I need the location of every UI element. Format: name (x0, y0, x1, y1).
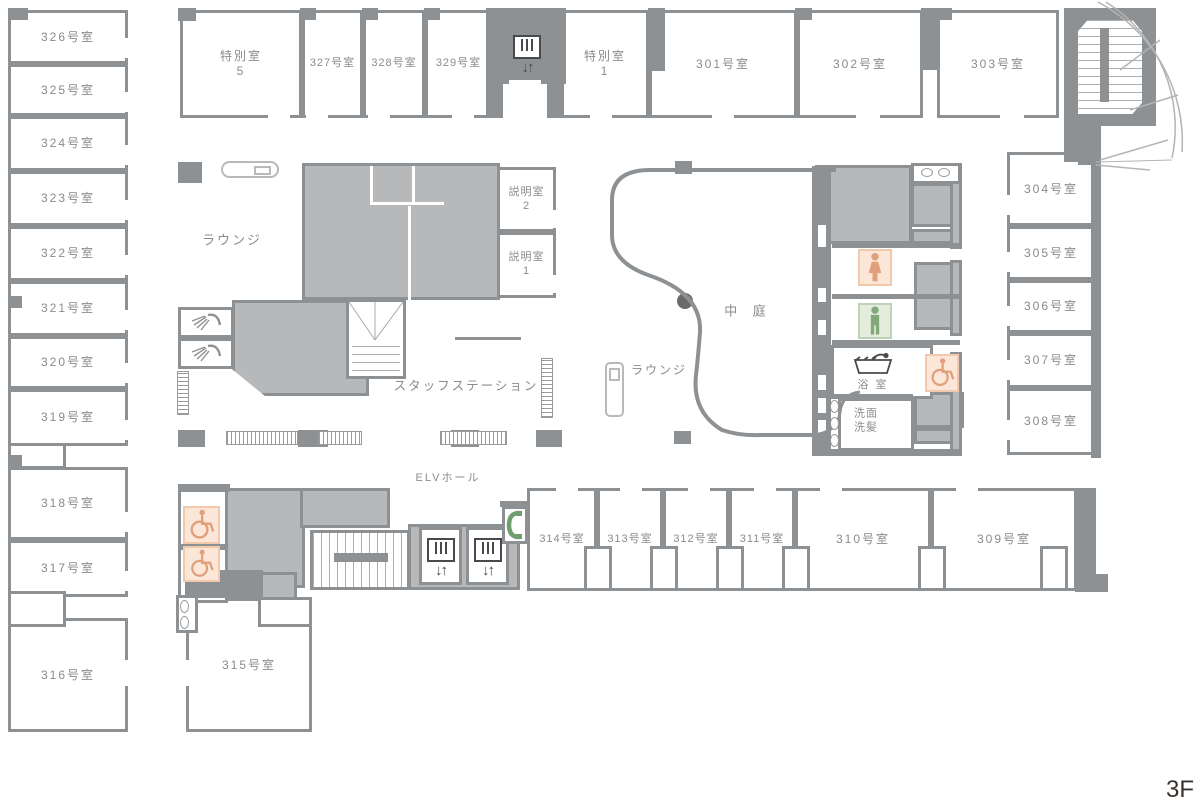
elevator-icon: ↓↑ (470, 535, 505, 581)
wall-segment (486, 82, 503, 118)
wall-segment (362, 8, 378, 20)
label-washroom: 洗面洗髪 (854, 407, 878, 436)
door-gap (124, 571, 130, 591)
door-gap (124, 92, 130, 112)
sink-icon (921, 168, 933, 177)
room-325-label: 325号室 (41, 83, 95, 98)
room-302-label: 302号室 (833, 57, 887, 72)
service-block-main (302, 163, 500, 300)
room-305: 305号室 (1007, 226, 1095, 280)
elevator-car-glyph (513, 35, 541, 59)
wheelchair-icon (183, 546, 220, 582)
door-gap (1005, 420, 1011, 440)
door-gap (124, 145, 130, 165)
vending-inner (609, 368, 620, 381)
wall-segment (832, 294, 960, 299)
room-325: 325号室 (8, 64, 128, 116)
female-toilet-icon (858, 249, 892, 286)
service-block (300, 488, 390, 528)
room-301: 301号室 (649, 10, 797, 118)
label-staff-station: スタッフステーション (394, 378, 539, 394)
room-317-label: 317号室 (41, 561, 95, 576)
door-gap (818, 225, 826, 247)
bath-icon (852, 352, 894, 376)
stairs-treads (352, 346, 400, 376)
door-gap (509, 80, 541, 85)
bench (177, 371, 189, 415)
room-307-label: 307号室 (1024, 353, 1078, 368)
room-318-label: 318号室 (41, 496, 95, 511)
room-306: 306号室 (1007, 280, 1095, 333)
sink-icon (830, 400, 839, 413)
floor-plan: 3F 326号室325号室324号室323号室322号室321号室320号室31… (0, 0, 1200, 806)
room-319: 319号室 (8, 389, 128, 446)
wall-segment (8, 296, 22, 308)
inner-partition (412, 166, 415, 204)
wall-segment (547, 82, 564, 118)
room-310-label: 310号室 (836, 532, 890, 547)
shower-icon (188, 342, 226, 366)
room-314-label: 314号室 (539, 533, 584, 547)
wall-segment (1091, 126, 1101, 458)
wall-segment (300, 8, 316, 20)
elevator-arrows: ↓↑ (482, 563, 493, 578)
door-gap (818, 320, 826, 335)
wheelchair-icon (183, 506, 220, 544)
room-303: 303号室 (937, 10, 1059, 118)
door-gap (124, 310, 130, 330)
sink-icon (180, 616, 189, 629)
door-gap (1005, 360, 1011, 380)
elevator-car-glyph (474, 538, 502, 562)
wall-segment (675, 161, 692, 174)
label-courtyard: 中 庭 (724, 304, 772, 321)
label-bath: 浴 室 (857, 378, 888, 392)
label-elv-hall: ELVホール (416, 471, 481, 485)
room-324-label: 324号室 (41, 136, 95, 151)
sink-counter (911, 163, 961, 184)
door-gap (124, 200, 130, 220)
door-gap (818, 420, 826, 433)
door-gap (1005, 306, 1011, 326)
wall-segment (1075, 574, 1108, 592)
phone-icon (505, 510, 524, 540)
shower-icon (188, 311, 226, 335)
wall-segment (832, 243, 960, 248)
door-gap (1005, 195, 1011, 215)
room-327: 327号室 (302, 10, 363, 118)
room-setsumei-1: 説明室1 (497, 232, 556, 298)
door-gap (754, 486, 776, 492)
room-320: 320号室 (8, 336, 128, 389)
lounge-counter-icon (221, 161, 279, 178)
room-307: 307号室 (1007, 333, 1095, 388)
wall-segment (178, 162, 202, 183)
elevator-arrows: ↓↑ (435, 563, 446, 578)
room-302: 302号室 (797, 10, 923, 118)
door-gap (184, 660, 190, 686)
door-gap (818, 398, 826, 413)
door-gap (1000, 112, 1024, 118)
counter-inner (254, 166, 271, 175)
room-321-label: 321号室 (41, 301, 95, 316)
room-318: 318号室 (8, 467, 128, 540)
room-tokubetsu-1-label: 特別室1 (584, 49, 626, 79)
room-304-label: 304号室 (1024, 182, 1078, 197)
room-321: 321号室 (8, 281, 128, 336)
room-tokubetsu-5-label: 特別室5 (220, 49, 262, 79)
door-gap (556, 486, 578, 492)
room-328: 328号室 (363, 10, 425, 118)
elevator-icon: ↓↑ (423, 535, 458, 581)
door-gap (712, 112, 734, 118)
inner-partition (408, 206, 411, 300)
alcove (782, 546, 810, 591)
bench (318, 431, 362, 445)
door-gap (124, 255, 130, 275)
room-329-label: 329号室 (436, 57, 481, 71)
room-309-label: 309号室 (977, 532, 1031, 547)
door-gap (552, 275, 558, 293)
room-306-label: 306号室 (1024, 299, 1078, 314)
wall-segment (8, 455, 22, 467)
bench (226, 431, 298, 445)
floor-indicator: 3F (1166, 776, 1194, 804)
room-326-label: 326号室 (41, 30, 95, 45)
room-323: 323号室 (8, 171, 128, 226)
room-311-label: 311号室 (740, 533, 785, 547)
door-gap (1005, 252, 1011, 272)
room-316-label: 316号室 (41, 668, 95, 683)
wheelchair-icon (925, 354, 959, 392)
inner-partition (370, 166, 373, 204)
sink-icon (180, 600, 189, 613)
door-gap (124, 38, 130, 58)
door-gap (856, 112, 880, 118)
room-322-label: 322号室 (41, 246, 95, 261)
room-303-label: 303号室 (971, 57, 1025, 72)
sink-icon (830, 434, 839, 447)
room-317: 317号室 (8, 540, 128, 597)
wall-segment (812, 449, 962, 456)
label-lounge-west: ラウンジ (202, 233, 262, 250)
wall-segment (1078, 150, 1095, 165)
wall-segment (178, 8, 196, 21)
alcove (8, 591, 66, 627)
bench (541, 358, 553, 418)
stairs-top-right (1078, 20, 1142, 114)
room-setsumei-2: 説明室2 (497, 167, 556, 232)
room-322: 322号室 (8, 226, 128, 281)
door-gap (268, 112, 290, 118)
elevator-icon: ↓↑ (508, 32, 546, 78)
door-gap (368, 112, 390, 118)
room-setsumei-1-label: 説明室1 (509, 251, 545, 279)
door-gap (552, 210, 558, 228)
door-gap (124, 420, 130, 440)
door-gap (124, 363, 130, 383)
room-315-label: 315号室 (222, 658, 276, 673)
room-313-label: 313号室 (607, 533, 652, 547)
stairs-rail (1100, 28, 1109, 102)
door-gap (590, 112, 612, 118)
door-gap (124, 512, 130, 532)
room-320-label: 320号室 (41, 355, 95, 370)
door-gap (620, 486, 642, 492)
wall-segment (424, 8, 440, 20)
room-setsumei-2-label: 説明室2 (509, 186, 545, 214)
room-316: 316号室 (8, 618, 128, 732)
wall-segment (935, 8, 952, 20)
wall-segment (8, 8, 28, 20)
room-310: 310号室 (795, 488, 931, 591)
sink-icon (938, 168, 950, 177)
room-301-label: 301号室 (696, 57, 750, 72)
door-gap (688, 486, 710, 492)
wall-segment (178, 430, 205, 447)
alcove (1040, 546, 1068, 591)
door-gap (818, 288, 826, 302)
elevator-arrows: ↓↑ (522, 60, 533, 75)
inner-partition (370, 202, 444, 205)
room-tokubetsu-5: 特別室5 (180, 10, 302, 118)
pillar-dot (677, 293, 693, 309)
sink-icon (830, 417, 839, 430)
stairs-landing-bar (334, 553, 388, 562)
vending-machine-icon (605, 362, 624, 417)
room-327-label: 327号室 (310, 57, 355, 71)
door-gap (124, 660, 130, 686)
room-328-label: 328号室 (371, 57, 416, 71)
door-gap (956, 486, 978, 492)
room-308-label: 308号室 (1024, 414, 1078, 429)
wall-segment (674, 431, 691, 444)
alcove (584, 546, 612, 591)
door-gap (452, 112, 474, 118)
room-319-label: 319号室 (41, 410, 95, 425)
wall-segment (455, 337, 521, 340)
door-gap (306, 112, 328, 118)
room-323-label: 323号室 (41, 191, 95, 206)
wall-segment (500, 501, 530, 507)
bench (440, 431, 507, 445)
wall-segment (536, 430, 562, 447)
room-324: 324号室 (8, 116, 128, 171)
label-lounge-center: ラウンジ (631, 363, 687, 379)
room-tokubetsu-1: 特別室1 (561, 10, 649, 118)
wall-segment (832, 340, 960, 345)
alcove (716, 546, 744, 591)
alcove (258, 597, 312, 627)
room-329: 329号室 (425, 10, 492, 118)
elevator-car-glyph (427, 538, 455, 562)
wall-segment (795, 8, 812, 20)
room-305-label: 305号室 (1024, 246, 1078, 261)
door-gap (818, 375, 826, 390)
wall-segment (648, 8, 665, 71)
alcove (918, 546, 946, 591)
room-308: 308号室 (1007, 388, 1095, 455)
room-312-label: 312号室 (673, 533, 718, 547)
stairs-middle (346, 299, 406, 379)
service-block (914, 428, 954, 444)
wall-segment (178, 484, 230, 492)
alcove (650, 546, 678, 591)
male-toilet-icon (858, 303, 892, 339)
door-gap (820, 486, 842, 492)
wall-segment (833, 394, 913, 398)
